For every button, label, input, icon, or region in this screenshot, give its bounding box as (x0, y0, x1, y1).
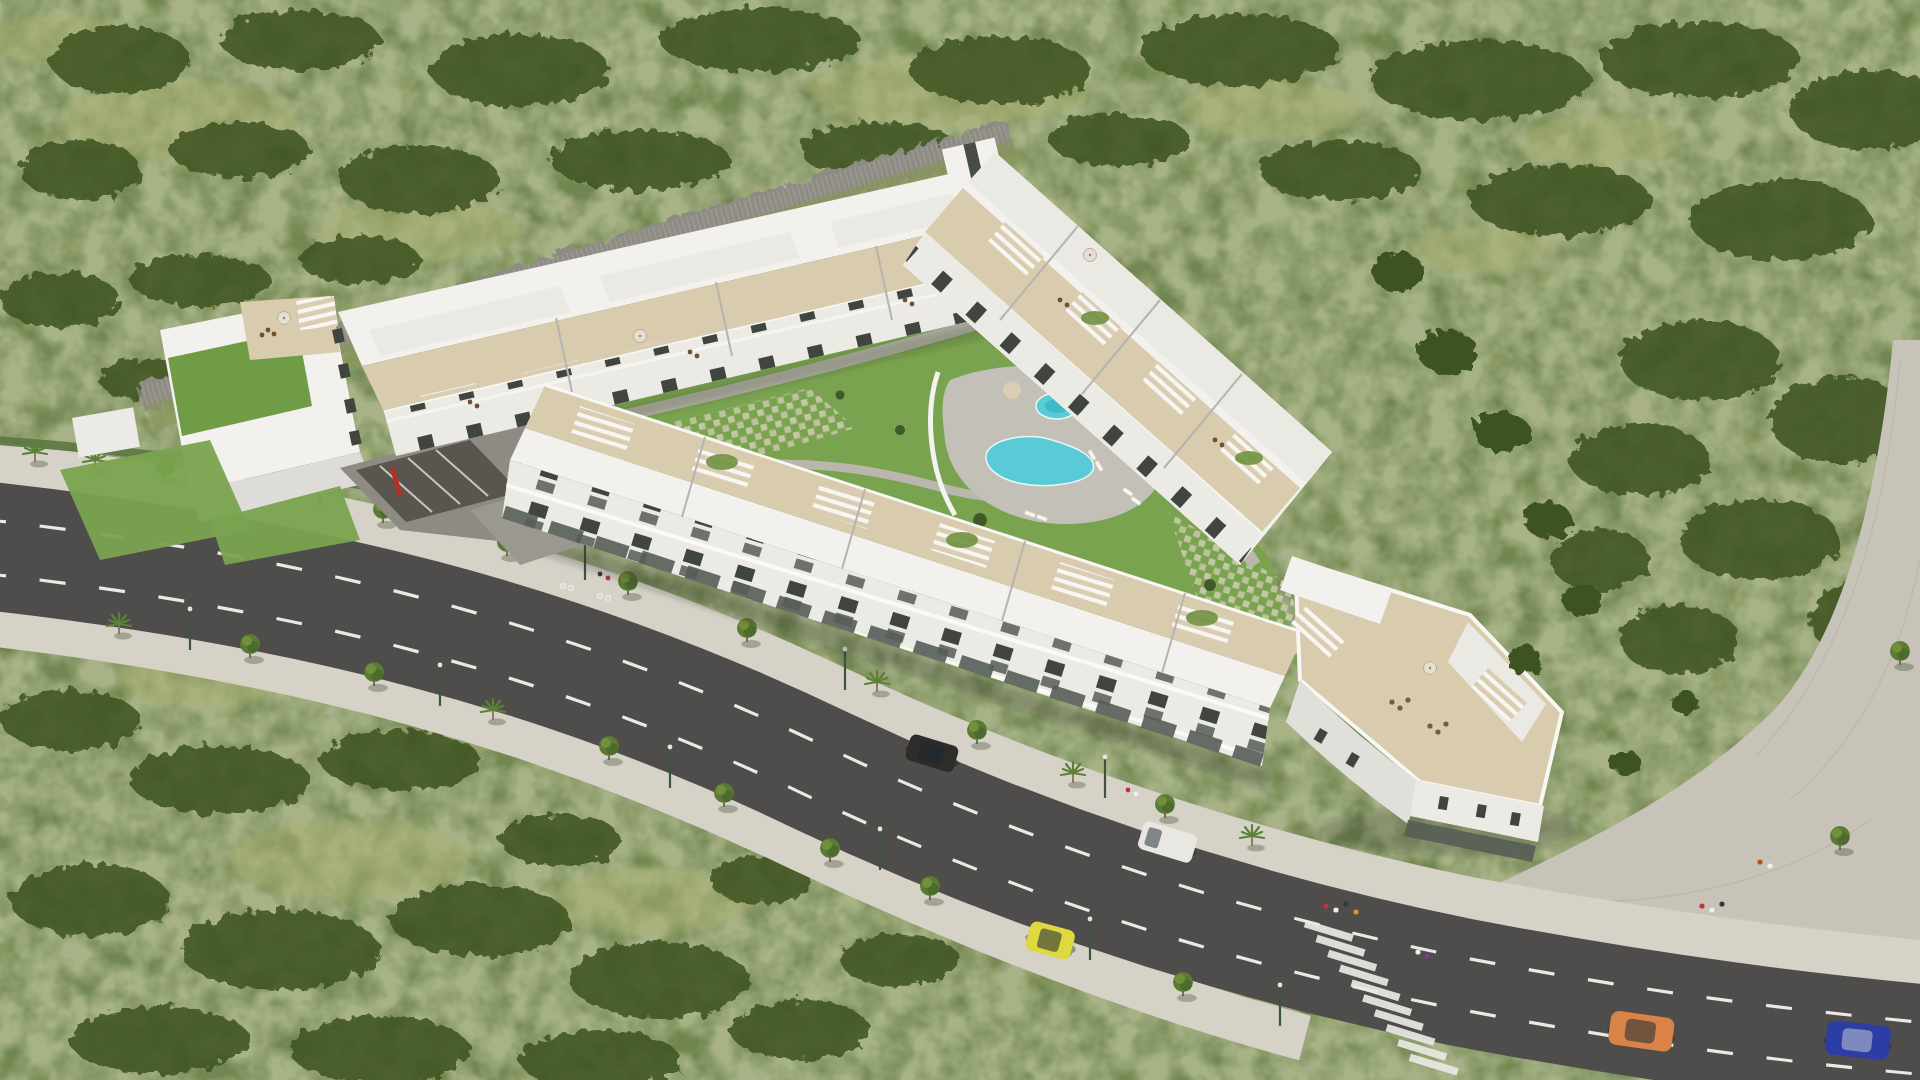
aerial-render-stage (0, 0, 1920, 1080)
pergola (296, 296, 338, 330)
blue-sedan (1822, 1020, 1893, 1061)
terrace-parasol (278, 312, 291, 325)
terrace-parasol (1424, 662, 1437, 675)
terrace-parasol (1084, 249, 1097, 262)
aerial-render (0, 0, 1920, 1080)
paved-circle (1003, 381, 1021, 399)
terrace-parasol (634, 330, 647, 343)
